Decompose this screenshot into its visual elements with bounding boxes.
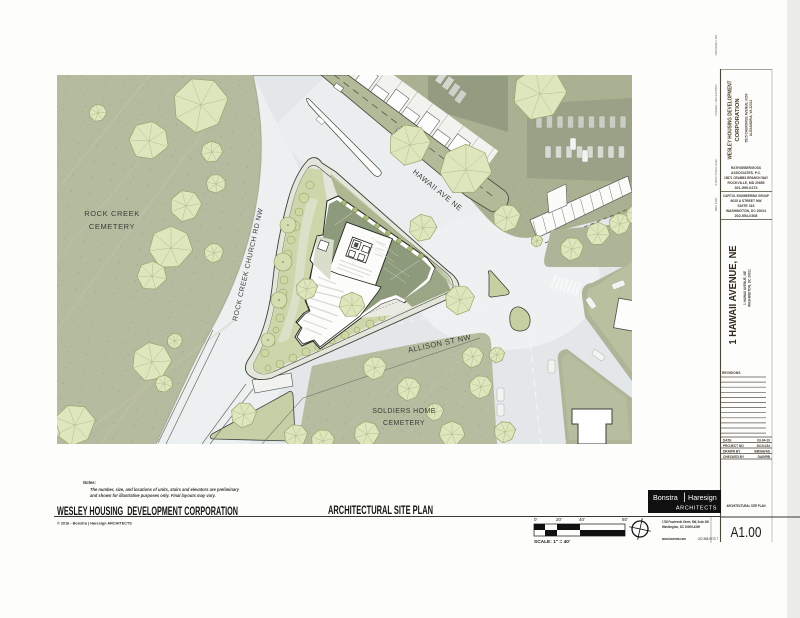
svg-text:40': 40' <box>579 517 585 522</box>
svg-text:CAPITOL ENGINEERING GROUP: CAPITOL ENGINEERING GROUP <box>723 194 770 198</box>
svg-text:CEMETERY: CEMETERY <box>89 222 135 231</box>
svg-text:2015-034: 2015-034 <box>757 444 771 448</box>
svg-text:1728 Fourteenth Street, NW, Su: 1728 Fourteenth Street, NW, Suite 300 <box>662 520 709 524</box>
svg-text:WESLEY HOUSING DEVELOPMENT CO: WESLEY HOUSING DEVELOPMENT CORPORATION <box>57 504 238 518</box>
svg-text:PROJECT NO: PROJECT NO <box>723 444 744 448</box>
svg-text:REVISIONS: REVISIONS <box>722 371 741 375</box>
svg-text:WESLEY HOUSING DEVELOPMENT: WESLEY HOUSING DEVELOPMENT <box>728 80 734 159</box>
svg-text:ARCHITECTURAL SITE PLAN: ARCHITECTURAL SITE PLAN <box>328 503 433 517</box>
svg-text:WASHINGTON, DC 20011: WASHINGTON, DC 20011 <box>748 269 752 307</box>
svg-text:DAR/RB: DAR/RB <box>758 455 771 459</box>
svg-text:6025 A STREET NW: 6025 A STREET NW <box>731 199 763 203</box>
svg-text:202.588.9373 T: 202.588.9373 T <box>698 537 718 541</box>
svg-text:BB/GB/AS: BB/GB/AS <box>754 449 770 453</box>
svg-text:MEP ENG.: MEP ENG. <box>714 197 718 211</box>
svg-text:15871 CRABBS BRANCH WAY: 15871 CRABBS BRANCH WAY <box>724 176 769 180</box>
svg-text:20': 20' <box>556 517 562 522</box>
svg-text:202-554-0308: 202-554-0308 <box>735 214 758 218</box>
svg-text:The number, size, and location: The number, size, and locations of units… <box>90 487 240 492</box>
svg-text:SOLDIERS HOME: SOLDIERS HOME <box>372 408 436 415</box>
svg-text:SUITE 315: SUITE 315 <box>738 204 755 208</box>
svg-text:OWNER / DEVELOPER: OWNER / DEVELOPER <box>714 84 718 115</box>
svg-text:CORPORATION: CORPORATION <box>735 98 741 141</box>
svg-text:5515 CHEROKEE AVENUE, #200: 5515 CHEROKEE AVENUE, #200 <box>745 93 749 142</box>
svg-text:DATE: DATE <box>723 438 731 442</box>
svg-text:Notes:: Notes: <box>83 480 97 485</box>
svg-text:ROCKVILLE, MD 20855: ROCKVILLE, MD 20855 <box>728 181 765 185</box>
svg-text:SCALE: 1" = 40': SCALE: 1" = 40' <box>534 539 570 545</box>
svg-text:A1.00: A1.00 <box>731 524 762 541</box>
svg-text:and shown for illustrative pur: and shown for illustrative purposes only… <box>90 493 216 498</box>
svg-text:ROCK CREEK: ROCK CREEK <box>84 209 140 218</box>
svg-text:CHECKED BY: CHECKED BY <box>723 455 745 459</box>
svg-text:DRAWN BY: DRAWN BY <box>723 449 741 453</box>
svg-text:DRAWING LOG: DRAWING LOG <box>714 34 718 56</box>
svg-text:0': 0' <box>534 517 538 522</box>
svg-text:RATHGEBER/GOSS: RATHGEBER/GOSS <box>731 166 762 170</box>
svg-text:1 HAWAII AVENUE, NE: 1 HAWAII AVENUE, NE <box>743 271 747 305</box>
svg-text:03-04-19: 03-04-19 <box>757 438 770 442</box>
svg-text:STRUCTURAL ENG.: STRUCTURAL ENG. <box>714 158 718 185</box>
svg-text:Bonstra: Bonstra <box>653 493 678 502</box>
svg-text:80': 80' <box>622 517 628 522</box>
svg-text:WASHINGTON, DC 20024: WASHINGTON, DC 20024 <box>726 209 766 213</box>
svg-text:ASSOCIATES, P.C.: ASSOCIATES, P.C. <box>731 171 761 175</box>
svg-text:CEMETERY: CEMETERY <box>383 420 425 427</box>
svg-text:© 2016 - Bonstra | Haresign AR: © 2016 - Bonstra | Haresign ARCHITECTS <box>57 522 132 526</box>
svg-text:www.bonstra.com: www.bonstra.com <box>661 537 686 541</box>
svg-text:1 HAWAII AVENUE, NE: 1 HAWAII AVENUE, NE <box>728 245 739 344</box>
svg-text:ARCHITECTURAL SITE PLAN: ARCHITECTURAL SITE PLAN <box>727 503 766 508</box>
svg-text:301-590-0273: 301-590-0273 <box>735 186 758 190</box>
svg-text:Haresign: Haresign <box>688 493 717 502</box>
svg-text:ALEXANDRIA, VA 22312: ALEXANDRIA, VA 22312 <box>749 100 753 137</box>
svg-text:Washington, DC 20009-4309: Washington, DC 20009-4309 <box>662 525 700 529</box>
svg-text:ARCHITECTS: ARCHITECTS <box>676 506 717 512</box>
